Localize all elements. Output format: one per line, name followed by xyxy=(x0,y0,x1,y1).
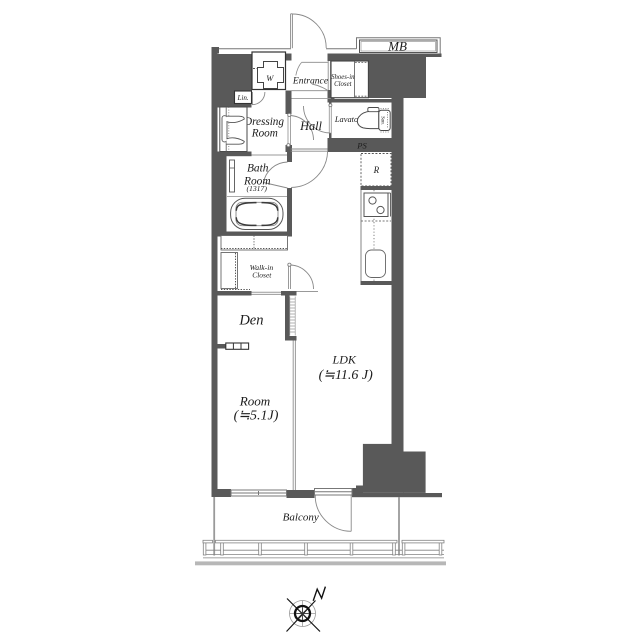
svg-text:Room: Room xyxy=(239,393,271,408)
svg-text:Room: Room xyxy=(251,127,278,139)
svg-text:LDK: LDK xyxy=(332,353,357,367)
svg-text:(≒11.6 J): (≒11.6 J) xyxy=(319,368,374,383)
svg-text:Entrance: Entrance xyxy=(292,76,329,87)
svg-text:Closet: Closet xyxy=(334,81,352,88)
svg-text:San.: San. xyxy=(380,116,385,125)
svg-text:R: R xyxy=(373,165,380,175)
svg-text:W: W xyxy=(266,73,274,83)
svg-text:(≒5.1J): (≒5.1J) xyxy=(234,408,279,423)
svg-text:(1317): (1317) xyxy=(246,184,267,193)
svg-text:Dressing: Dressing xyxy=(243,116,284,128)
svg-text:Closet: Closet xyxy=(252,271,272,280)
svg-text:Den: Den xyxy=(238,313,263,329)
svg-text:PS: PS xyxy=(356,141,367,151)
svg-text:Lin.: Lin. xyxy=(236,94,248,102)
svg-text:Balcony: Balcony xyxy=(283,512,319,524)
svg-text:Bath: Bath xyxy=(247,163,269,175)
svg-text:MB: MB xyxy=(387,38,407,53)
svg-text:Hall: Hall xyxy=(299,119,322,133)
